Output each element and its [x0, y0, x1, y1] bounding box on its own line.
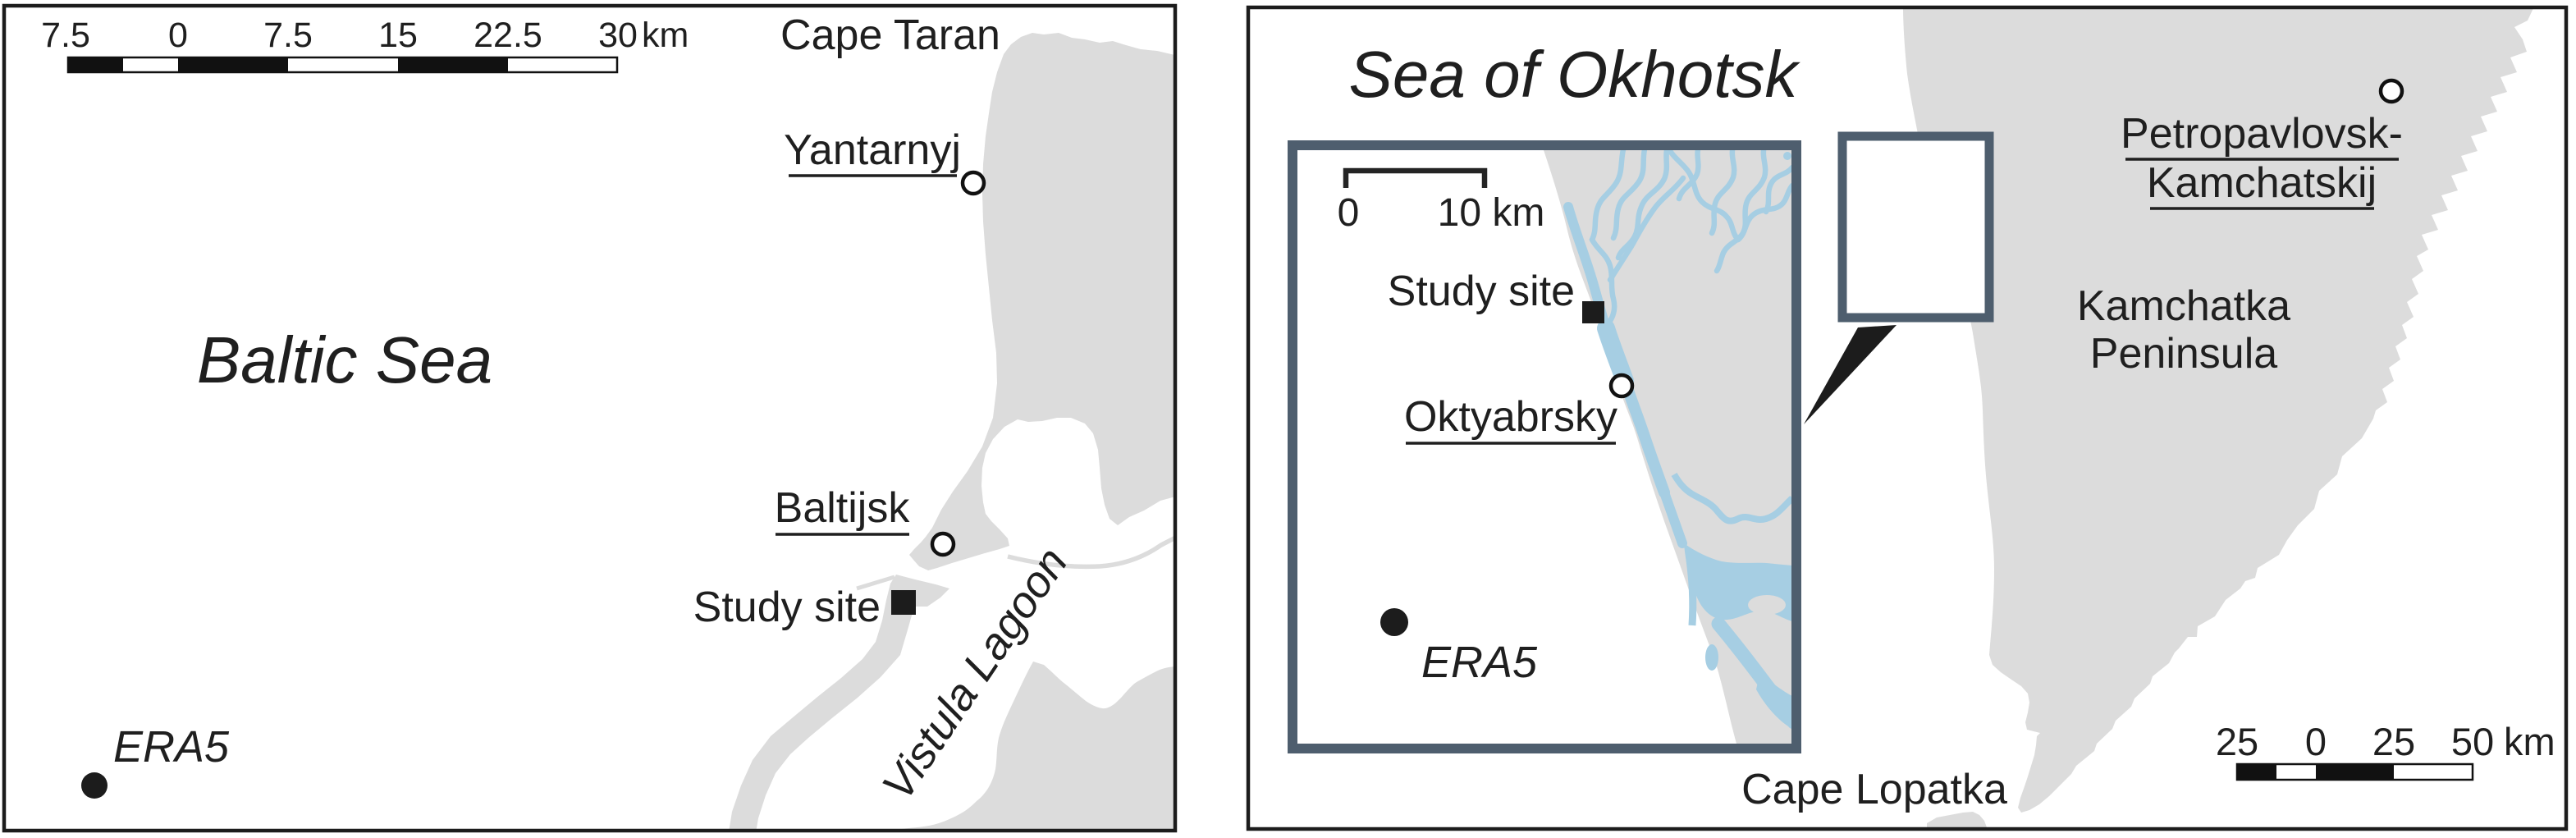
svg-text:Sea of Okhotsk: Sea of Okhotsk — [1349, 38, 1801, 111]
svg-text:Cape Lopatka: Cape Lopatka — [1741, 766, 2007, 813]
svg-text:km: km — [2504, 720, 2555, 763]
svg-text:30: 30 — [598, 16, 638, 55]
svg-text:Kamchatka: Kamchatka — [2077, 282, 2290, 330]
svg-text:km: km — [642, 16, 689, 55]
svg-text:Study site: Study site — [1388, 268, 1575, 315]
svg-text:7.5: 7.5 — [263, 16, 313, 55]
svg-text:Baltijsk: Baltijsk — [775, 484, 911, 532]
svg-text:15: 15 — [378, 16, 418, 55]
svg-text:ERA5: ERA5 — [1421, 638, 1538, 687]
svg-text:0: 0 — [168, 16, 188, 55]
svg-text:ERA5: ERA5 — [113, 722, 230, 772]
svg-text:0: 0 — [2305, 720, 2327, 763]
svg-text:Petropavlovsk-: Petropavlovsk- — [2121, 110, 2403, 158]
svg-text:Study site: Study site — [693, 584, 881, 631]
svg-text:50: 50 — [2451, 720, 2494, 763]
svg-text:Peninsula: Peninsula — [2090, 330, 2277, 378]
svg-text:Baltic Sea: Baltic Sea — [197, 323, 492, 396]
svg-text:25: 25 — [2372, 720, 2415, 763]
svg-text:0: 0 — [1338, 191, 1360, 235]
svg-text:Cape Taran: Cape Taran — [780, 11, 1000, 59]
svg-text:7.5: 7.5 — [41, 16, 90, 55]
svg-text:25: 25 — [2216, 720, 2258, 763]
svg-text:Oktyabrsky: Oktyabrsky — [1404, 393, 1617, 441]
svg-text:Yantarnyj: Yantarnyj — [784, 126, 961, 174]
svg-text:10 km: 10 km — [1438, 191, 1545, 235]
svg-text:22.5: 22.5 — [474, 16, 542, 55]
svg-text:Kamchatskij: Kamchatskij — [2147, 159, 2377, 207]
